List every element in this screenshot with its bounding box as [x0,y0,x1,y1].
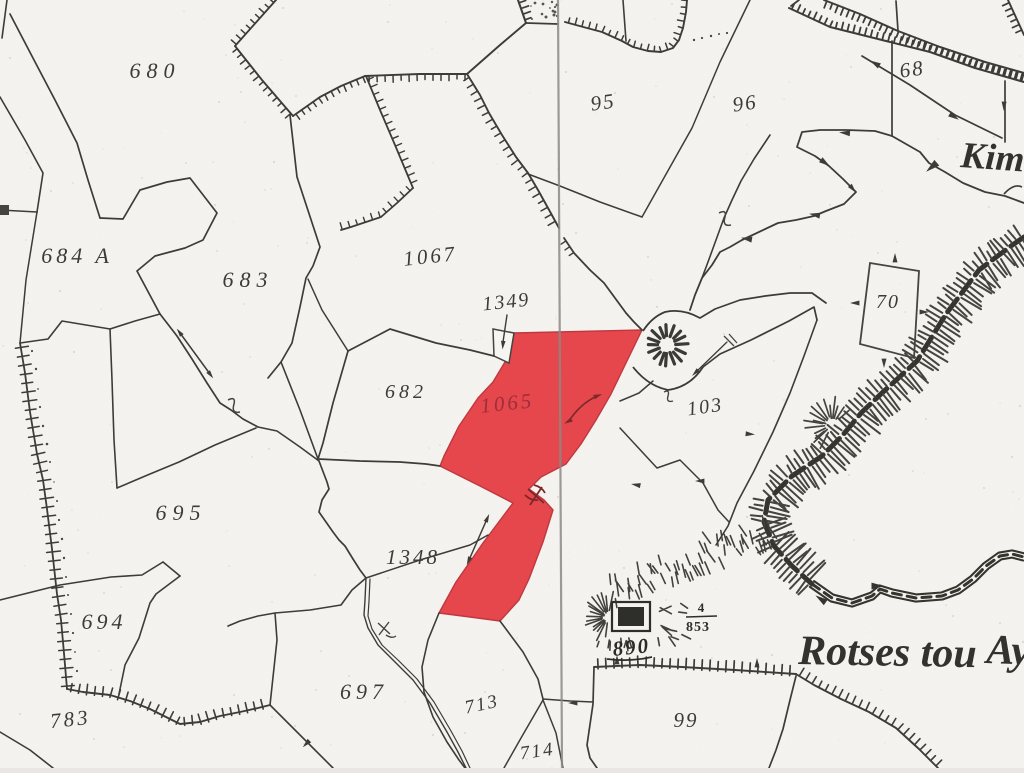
svg-text:Ay: Ay [983,627,1024,675]
svg-text:Rotses tou: Rotses tou [797,628,977,677]
svg-text:682: 682 [385,381,427,403]
svg-text:70: 70 [876,291,900,313]
svg-text:680: 680 [130,58,181,83]
svg-text:694: 694 [82,609,127,634]
svg-text:4: 4 [698,600,705,615]
svg-text:68: 68 [898,55,926,82]
svg-text:Kim: Kim [958,135,1024,180]
svg-text:853: 853 [686,620,710,635]
svg-text:683: 683 [223,267,274,292]
svg-text:695: 695 [156,500,207,525]
svg-text:1348: 1348 [386,545,440,569]
svg-text:890: 890 [611,633,651,661]
svg-text:783: 783 [49,705,92,733]
svg-text:95: 95 [589,88,617,115]
svg-text:99: 99 [674,708,699,732]
svg-text:684 A: 684 A [41,243,113,268]
svg-text:697: 697 [340,679,388,704]
svg-text:96: 96 [731,89,759,116]
